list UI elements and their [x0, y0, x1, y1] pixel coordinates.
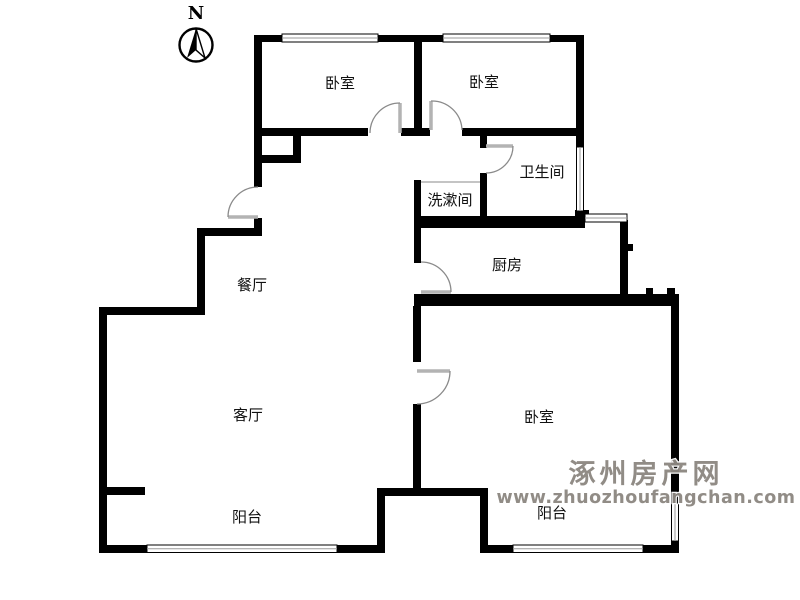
door-bedroom-south	[417, 371, 450, 404]
wall-segment	[377, 488, 385, 553]
wall-segment	[197, 228, 205, 315]
wall-segment	[254, 35, 262, 187]
watermark-site-url: www.zhuozhoufangchan.com	[496, 488, 795, 508]
room-label-washroom: 洗漱间	[427, 191, 472, 209]
wall-segment	[667, 288, 675, 295]
room-label-kitchen: 厨房	[492, 256, 522, 274]
watermark: 涿州房产网 www.zhuozhoufangchan.com	[496, 459, 795, 508]
compass-n-label: N	[188, 3, 204, 24]
floor-plan-page: 卧室 卧室 卫生间 洗漱间 厨房 餐厅 客厅 卧室 阳台 阳台 N 涿州房产网 …	[0, 0, 800, 600]
room-label-bedroom-northeast: 卧室	[469, 73, 499, 91]
window-bedroom-ne	[443, 34, 550, 42]
wall-segment	[107, 487, 145, 495]
wall-segment	[480, 135, 487, 148]
wall-segment	[620, 220, 628, 300]
wall-segment	[413, 404, 421, 489]
door-bedroom-nw	[370, 103, 400, 133]
wall-segment	[480, 173, 487, 221]
wall-segment	[646, 288, 653, 295]
room-label-dining-room: 餐厅	[237, 276, 267, 294]
window-kitchen-north	[585, 214, 627, 222]
doors	[228, 101, 513, 404]
window-balcony-se-south	[513, 545, 643, 553]
room-label-balcony-southwest: 阳台	[232, 508, 262, 526]
north-compass: N	[180, 3, 213, 62]
window-balcony-se-east	[672, 503, 679, 541]
wall-segment	[99, 307, 205, 315]
floor-plan-svg: 卧室 卧室 卫生间 洗漱间 厨房 餐厅 客厅 卧室 阳台 阳台 N 涿州房产网 …	[0, 0, 800, 600]
compass-needle-light	[196, 29, 205, 59]
room-label-living-room: 客厅	[233, 406, 263, 424]
door-kitchen	[421, 262, 451, 292]
wall-segment	[254, 155, 301, 163]
window-bedroom-nw	[282, 34, 378, 42]
compass-needle-dark	[187, 29, 196, 59]
wall-segment	[254, 128, 368, 136]
window-balcony-sw-south	[147, 545, 337, 553]
wall-segment	[462, 128, 583, 136]
wall-segment	[414, 216, 585, 228]
wall-segment	[414, 294, 679, 306]
watermark-site-name: 涿州房产网	[569, 459, 724, 490]
wall-segment	[99, 307, 107, 553]
door-bathroom	[486, 146, 513, 173]
wall-segment	[413, 306, 421, 362]
door-bedroom-ne	[431, 101, 462, 130]
room-label-bathroom: 卫生间	[519, 163, 564, 181]
wall-segment	[197, 228, 262, 236]
window-bathroom	[577, 147, 584, 211]
room-label-bedroom-northwest: 卧室	[325, 74, 355, 92]
wall-segment	[414, 42, 422, 135]
wall-segment	[480, 496, 488, 553]
door-entry	[228, 187, 258, 217]
wall-segment	[627, 244, 633, 251]
room-label-bedroom-south: 卧室	[524, 408, 554, 426]
wall-segment	[377, 488, 488, 496]
wall-segment	[401, 128, 430, 136]
